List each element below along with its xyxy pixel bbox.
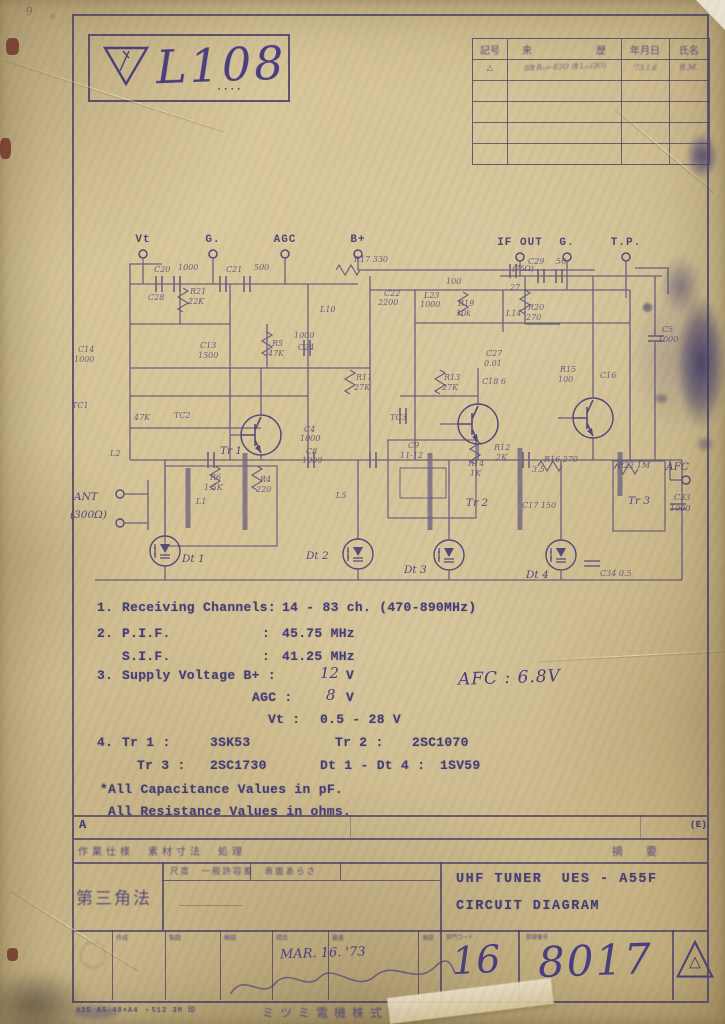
spec-7-value: 3SK53 — [210, 735, 251, 750]
svg-text:1000: 1000 — [294, 331, 314, 340]
svg-text:Tr 1: Tr 1 — [220, 445, 242, 457]
svg-text:270: 270 — [525, 313, 541, 322]
rev-col-history-r: 歴 — [591, 42, 611, 57]
svg-text:1000: 1000 — [300, 434, 320, 443]
svg-text:C14: C14 — [78, 345, 94, 354]
spec-1-label: Receiving Channels: — [122, 600, 276, 615]
svg-text:C22: C22 — [384, 289, 400, 298]
svg-text:L10: L10 — [319, 305, 336, 314]
remark-label: 摘 要 — [612, 843, 663, 859]
svg-text:1000: 1000 — [178, 263, 198, 272]
revision-table: 記号 来 歴 年月日 氏名 △ ﾛ改 R₁₃←E2O 改 L₁₀(3O) '73… — [472, 38, 710, 165]
svg-text:TC1: TC1 — [72, 401, 89, 410]
spec-3-label: S.I.F. — [122, 649, 171, 664]
spec-7-label2: Tr 2 : — [335, 735, 384, 750]
svg-text:C28: C28 — [148, 293, 164, 302]
svg-text:(300Ω): (300Ω) — [70, 509, 107, 521]
rev-row-note: ﾛ改 R₁₃←E2O 改 L₁₀(3O) — [509, 60, 621, 74]
red-margin-mark — [6, 38, 19, 55]
rev-row-mark: △ — [473, 63, 507, 72]
svg-text:56: 56 — [556, 257, 566, 266]
svg-text:47K: 47K — [267, 349, 285, 358]
svg-text:R21: R21 — [189, 287, 206, 296]
pencil-note: o — [50, 12, 55, 21]
rev-row-date: '73.1.6 — [621, 64, 669, 72]
svg-text:R5: R5 — [271, 339, 283, 348]
svg-text:L1: L1 — [195, 497, 206, 506]
svg-text:C16: C16 — [600, 371, 616, 380]
spec-8-label2: Dt 1 - Dt 4 : — [320, 758, 425, 773]
sign-cell-header: 検図 — [224, 933, 236, 942]
sign-cell-header: 作成 — [116, 933, 128, 942]
terminal-g: G. — [205, 234, 220, 258]
svg-text:C29: C29 — [528, 257, 544, 266]
svg-text:L5: L5 — [335, 491, 346, 500]
spec-4-label: Supply Voltage B+ : — [122, 668, 276, 683]
scale-header: 尺度 一般許容差 表面あらさ — [170, 865, 317, 877]
svg-text:C4: C4 — [304, 425, 315, 434]
svg-text:2K: 2K — [495, 453, 508, 462]
svg-text:27K: 27K — [353, 383, 371, 392]
svg-text:1000: 1000 — [670, 504, 690, 513]
sign-cell-header: 製図 — [169, 933, 181, 942]
drawing-title-line1: UHF TUNER UES - A55F — [456, 872, 658, 887]
footer-print-code: #25 A5-48×A4 ・512 3M 印 — [76, 1005, 196, 1015]
svg-text:TC2: TC2 — [174, 411, 191, 420]
svg-text:T.P.: T.P. — [611, 237, 641, 249]
svg-text:1000: 1000 — [74, 355, 94, 364]
svg-text:C33: C33 — [674, 493, 690, 502]
svg-text:TC3: TC3 — [390, 413, 407, 422]
spec-6-value: 0.5 - 28 V — [320, 712, 401, 727]
pencil-note: 9 — [25, 4, 35, 18]
spec-3-value: 41.25 MHz — [282, 649, 355, 664]
svg-text:R15: R15 — [559, 365, 576, 374]
spec-7-label: Tr 1 : — [122, 735, 171, 750]
svg-text:C27: C27 — [486, 349, 503, 358]
red-margin-mark — [0, 138, 11, 159]
spec-8-value: 2SC1730 — [210, 758, 267, 773]
svg-text:L23: L23 — [423, 291, 440, 300]
svg-text:Dt 1: Dt 1 — [181, 553, 205, 565]
spec-7-value2: 2SC1070 — [412, 735, 469, 750]
svg-text:1000: 1000 — [302, 456, 322, 465]
drawing-title-line2: CIRCUIT DIAGRAM — [456, 899, 600, 914]
varactor-diode-dt3: Dt 3 — [403, 540, 464, 576]
terminal-agc: AGC — [274, 234, 297, 258]
svg-text:100: 100 — [446, 277, 461, 286]
svg-text:2200: 2200 — [377, 298, 398, 307]
transistor-tr1: Tr 1 — [220, 415, 281, 457]
svg-text:27K: 27K — [441, 383, 459, 392]
blueprint-page: 9 o L108 ▪▪▪▪ 記号 来 歴 年月日 氏名 △ ﾛ改 R₁₃←E2O… — [0, 0, 725, 1024]
spec-2-colon: : — [262, 626, 270, 641]
svg-text:L14: L14 — [505, 309, 522, 318]
svg-text:Vt: Vt — [135, 234, 150, 246]
svg-text:G.: G. — [205, 234, 220, 246]
spec-3-colon: : — [262, 649, 270, 664]
svg-text:Dt 3: Dt 3 — [403, 564, 427, 576]
svg-text:R14: R14 — [467, 459, 484, 468]
rev-col-name: 氏名 — [669, 42, 709, 57]
svg-text:1000: 1000 — [658, 335, 678, 344]
spec-4-num: 3. — [97, 668, 113, 683]
svg-text:3.5: 3.5 — [532, 465, 545, 474]
svg-text:1K: 1K — [470, 469, 482, 478]
svg-text:R19: R19 — [457, 299, 474, 308]
svg-text:C8: C8 — [306, 447, 317, 456]
svg-text:C20: C20 — [154, 265, 170, 274]
spec-5-label: AGC : — [252, 690, 293, 705]
stamp-dots: ▪▪▪▪ — [218, 86, 244, 93]
svg-text:220: 220 — [255, 485, 271, 494]
signature-scribble — [225, 958, 460, 1000]
svg-text:ANT: ANT — [73, 491, 99, 503]
svg-text:Dt 4: Dt 4 — [525, 569, 549, 581]
spec-note-capacitance: *All Capacitance Values in pF. — [100, 782, 343, 797]
spec-5-hand-value: 8 — [326, 686, 336, 704]
svg-text:1.5K: 1.5K — [204, 483, 224, 492]
svg-text:R4: R4 — [259, 475, 271, 484]
svg-text:B+: B+ — [350, 234, 365, 246]
stamp-mark — [80, 942, 106, 968]
company-name: ミツミ電機株式会社 — [262, 1004, 424, 1021]
drawing-number-box: L108 ▪▪▪▪ — [88, 34, 290, 102]
svg-text:AFC: AFC — [665, 461, 689, 473]
svg-text:R13: R13 — [443, 373, 460, 382]
transistor-tr3: Tr 3 — [573, 398, 650, 507]
svg-text:C9: C9 — [408, 441, 419, 450]
svg-text:Tr 2: Tr 2 — [466, 497, 488, 509]
svg-text:22K: 22K — [187, 297, 205, 306]
red-margin-mark — [7, 948, 18, 961]
process-row-label: 作業仕様 素材寸法 処理 — [78, 843, 246, 858]
rev-col-mark: 記号 — [473, 42, 507, 57]
drawing-no: 8017 — [537, 934, 654, 987]
sign-cell-header: 照合 — [276, 933, 288, 942]
svg-text:C21: C21 — [226, 265, 242, 274]
spec-6-label: Vt : — [268, 712, 300, 727]
spec-5-unit: V — [346, 690, 354, 705]
mitsumi-triangle-icon — [102, 44, 150, 88]
spec-7-num: 4. — [97, 735, 113, 750]
spec-4-hand-value: 12 — [320, 664, 339, 682]
projection-method-label: 第三角法 — [76, 884, 152, 909]
svg-text:R22 1M: R22 1M — [617, 461, 651, 470]
spec-8-value2: 1SV59 — [440, 758, 481, 773]
antenna-input: ANT(300Ω) — [70, 490, 124, 527]
terminal-vt: Vt — [135, 234, 150, 258]
spec-1-num: 1. — [97, 600, 113, 615]
svg-text:C5: C5 — [662, 325, 673, 334]
svg-text:G.: G. — [559, 237, 574, 249]
svg-text:100: 100 — [558, 375, 573, 384]
svg-text:Dt 2: Dt 2 — [305, 550, 329, 562]
spec-2-label: P.I.F. — [122, 626, 171, 641]
spec-8-label: Tr 3 : — [137, 758, 186, 773]
svg-text:R16 270: R16 270 — [543, 455, 578, 464]
svg-text:500: 500 — [254, 263, 269, 272]
svg-text:R20: R20 — [527, 303, 544, 312]
row-a-label: A — [79, 818, 87, 832]
svg-text:11-12: 11-12 — [400, 451, 423, 460]
svg-text:1500: 1500 — [198, 351, 218, 360]
sign-cell-header: 承認 — [422, 933, 434, 942]
svg-text:C17 150: C17 150 — [522, 501, 556, 510]
svg-text:R12: R12 — [493, 443, 510, 452]
svg-text:AGC: AGC — [274, 234, 297, 246]
rev-col-date: 年月日 — [621, 42, 669, 57]
terminal-tp: T.P. — [611, 237, 641, 261]
varactor-diode-dt4: Dt 4 — [525, 540, 576, 581]
spec-1-value: 14 - 83 ch. (470-890MHz) — [282, 600, 476, 615]
revision-triangle-icon — [676, 938, 714, 984]
circuit-schematic: VtG.AGCB+IF OUT(75Ω)G.T.P.ANT(300Ω)AFCTr… — [70, 228, 702, 598]
svg-text:R17 330: R17 330 — [353, 255, 388, 264]
svg-text:C34 0.5: C34 0.5 — [600, 569, 632, 578]
svg-text:R6: R6 — [209, 473, 221, 482]
spec-note-resistance: All Resistance Values in ohms. — [108, 804, 351, 819]
spec-2-value: 45.75 MHz — [282, 626, 355, 641]
spec-2-num: 2. — [97, 626, 113, 641]
svg-text:27: 27 — [509, 283, 521, 292]
svg-text:47K: 47K — [133, 413, 151, 422]
svg-text:Tr 3: Tr 3 — [628, 495, 650, 507]
spec-4-unit: V — [346, 668, 354, 683]
svg-text:C13: C13 — [200, 341, 216, 350]
varactor-diode-dt1: Dt 1 — [150, 536, 205, 566]
rev-row-name: R.M. — [669, 63, 709, 72]
svg-text:R11: R11 — [355, 373, 372, 382]
svg-text:IF OUT: IF OUT — [497, 237, 543, 249]
svg-text:0.01: 0.01 — [484, 359, 502, 368]
svg-text:L2: L2 — [109, 449, 120, 458]
varactor-diode-dt2: Dt 2 — [305, 539, 373, 569]
svg-text:10k: 10k — [456, 309, 471, 318]
sign-cell-header: 審査 — [332, 933, 344, 942]
rev-col-history-l: 来 — [517, 42, 537, 57]
svg-text:C24: C24 — [298, 343, 314, 352]
afc-handwritten-note: AFC : 6.8V — [458, 666, 562, 690]
svg-text:1000: 1000 — [420, 300, 440, 309]
corner-note: (E) — [690, 820, 707, 830]
terminal-ifout: IF OUT(75Ω) — [497, 237, 543, 273]
svg-text:C18 6: C18 6 — [482, 377, 506, 386]
